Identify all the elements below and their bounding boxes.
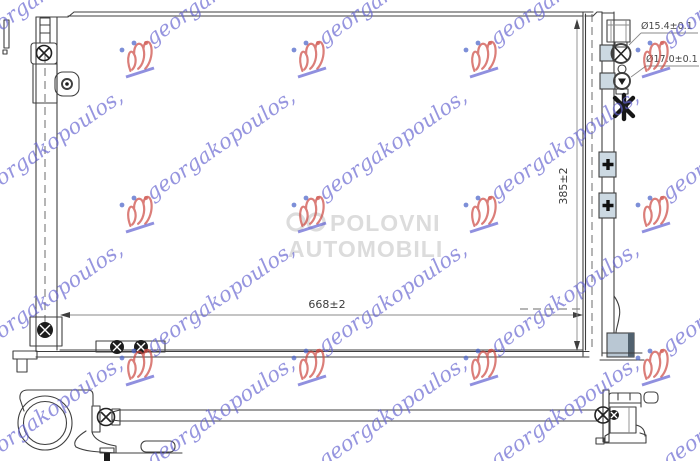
watermark-script-text: georgakopoulos, bbox=[313, 84, 471, 205]
watermark-line1: POLOVNI bbox=[330, 210, 441, 236]
screenshot-root: 668±2 385±2 bbox=[0, 0, 700, 461]
left-foot bbox=[13, 351, 37, 372]
watermark-unit: georgakopoulos, bbox=[292, 351, 472, 461]
watermark-script-text: georgakopoulos, bbox=[0, 84, 127, 205]
watermark-unit: georgakopoulos, bbox=[120, 351, 300, 461]
mount-pad-lower bbox=[599, 193, 616, 218]
watermark-unit: georgakopoulos, bbox=[636, 0, 700, 77]
watermark-script-text: georgakopoulos, bbox=[0, 0, 127, 50]
watermark-unit: georgakopoulos, bbox=[464, 351, 644, 461]
watermark-script-text: georgakopoulos, bbox=[141, 84, 299, 205]
watermark-script-text: georgakopoulos, bbox=[657, 237, 700, 358]
right-side-member bbox=[585, 12, 644, 360]
watermark-script-text: georgakopoulos, bbox=[313, 0, 471, 50]
pipe-bottom-label: Ø17.0±0.1 bbox=[646, 54, 698, 65]
watermark-unit: georgakopoulos, bbox=[0, 84, 127, 232]
bolt-icon bbox=[100, 448, 114, 461]
top-pipe-stem bbox=[40, 18, 50, 43]
technical-drawing: 668±2 385±2 bbox=[0, 0, 700, 461]
watermark-script-text: georgakopoulos, bbox=[141, 351, 299, 461]
watermark-unit: georgakopoulos, bbox=[636, 351, 700, 461]
height-dimension-label: 385±2 bbox=[557, 167, 570, 204]
polovni-automobili-watermark: POLOVNI AUTOMOBILI bbox=[288, 210, 443, 262]
left-top-bracket bbox=[33, 64, 79, 103]
width-dimension-label: 668±2 bbox=[308, 298, 345, 311]
watermark-script-text: georgakopoulos, bbox=[141, 237, 299, 358]
core-profile-bar bbox=[112, 410, 598, 421]
watermark-unit: georgakopoulos, bbox=[636, 84, 700, 232]
pipe-stub bbox=[607, 20, 630, 42]
watermark-script-text: georgakopoulos, bbox=[0, 237, 127, 358]
watermark-script-text: georgakopoulos, bbox=[141, 0, 299, 50]
watermark-script-text: georgakopoulos, bbox=[485, 351, 643, 461]
watermark-unit: georgakopoulos, bbox=[120, 84, 300, 232]
mount-pad-upper bbox=[599, 152, 616, 177]
width-dimension: 668±2 bbox=[60, 298, 583, 318]
watermark-line2: AUTOMOBILI bbox=[288, 236, 443, 262]
watermark-script-text: georgakopoulos, bbox=[657, 351, 700, 461]
watermark-script-text: georgakopoulos, bbox=[657, 84, 700, 205]
watermark-script-text: georgakopoulos, bbox=[313, 351, 471, 461]
watermark-unit: georgakopoulos, bbox=[636, 237, 700, 385]
